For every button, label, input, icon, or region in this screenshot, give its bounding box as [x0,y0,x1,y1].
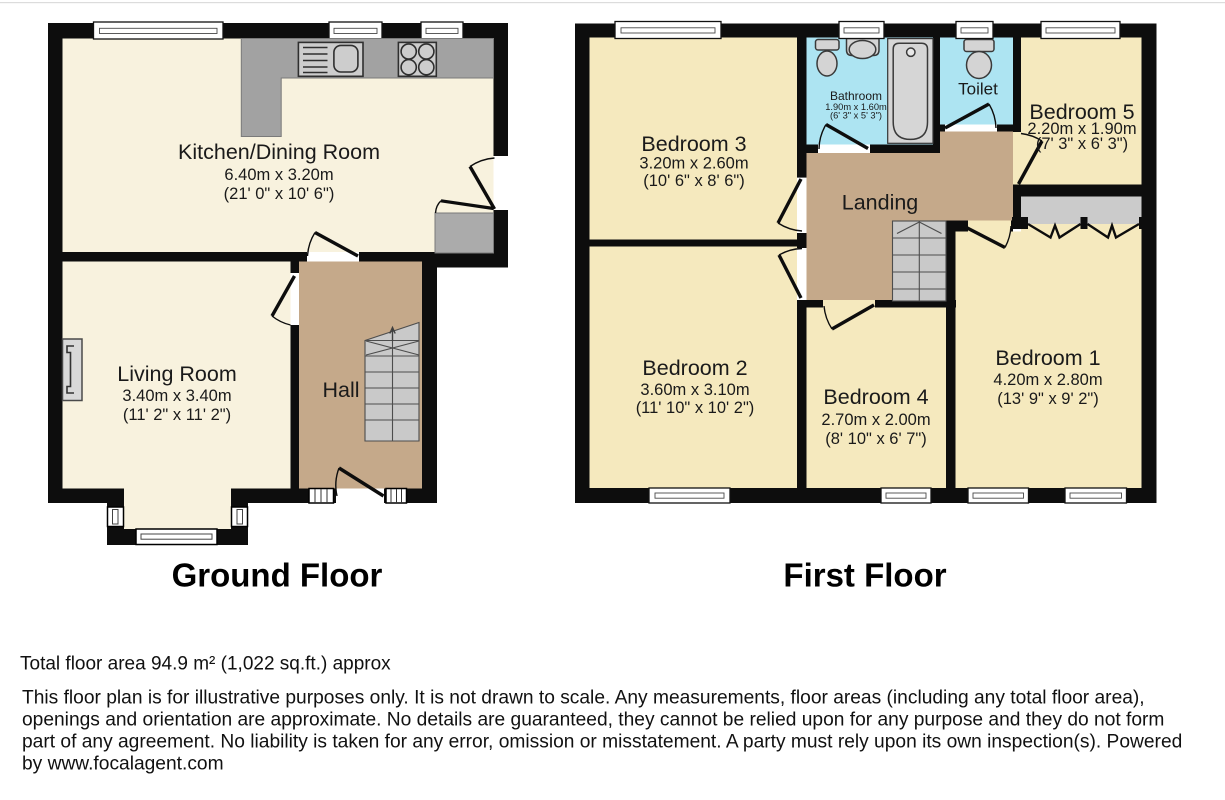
svg-text:4.20m x 2.80m: 4.20m x 2.80m [993,371,1102,389]
svg-text:2.70m x 2.00m: 2.70m x 2.00m [821,411,930,429]
svg-text:(13' 9" x 9' 2"): (13' 9" x 9' 2") [997,390,1098,408]
svg-text:Bedroom 1: Bedroom 1 [995,346,1100,370]
svg-text:(11' 2" x 11' 2"): (11' 2" x 11' 2") [123,406,231,424]
svg-text:3.60m x 3.10m: 3.60m x 3.10m [640,381,749,399]
svg-text:by www.focalagent.com: by www.focalagent.com [22,754,224,775]
svg-text:Toilet: Toilet [958,80,998,99]
svg-text:Bedroom 4: Bedroom 4 [823,385,928,409]
svg-text:(11' 10" x 10' 2"): (11' 10" x 10' 2") [636,399,755,417]
svg-text:3.20m x 2.60m: 3.20m x 2.60m [639,155,748,173]
svg-text:Bedroom 2: Bedroom 2 [642,356,747,380]
svg-text:(10' 6" x 8' 6"): (10' 6" x 8' 6") [643,172,744,190]
svg-text:6.40m x 3.20m: 6.40m x 3.20m [224,166,333,184]
svg-text:Bathroom: Bathroom [830,89,882,103]
svg-text:(8' 10" x 6' 7"): (8' 10" x 6' 7") [825,430,926,448]
svg-text:This floor plan is for illustr: This floor plan is for illustrative purp… [22,688,1145,709]
svg-text:openings and orientation are a: openings and orientation are approximate… [22,710,1164,731]
svg-text:(7' 3" x 6' 3"): (7' 3" x 6' 3") [1036,135,1128,153]
svg-text:Living Room: Living Room [117,362,237,386]
svg-text:part of any agreement. No liab: part of any agreement. No liability is t… [22,732,1182,753]
svg-text:Ground Floor: Ground Floor [172,557,383,594]
svg-text:3.40m x 3.40m: 3.40m x 3.40m [122,387,231,405]
svg-text:Landing: Landing [842,191,919,215]
svg-text:Hall: Hall [322,378,359,402]
svg-text:Bedroom 3: Bedroom 3 [641,132,746,156]
svg-text:Total floor area 94.9 m² (1,02: Total floor area 94.9 m² (1,022 sq.ft.) … [20,654,391,675]
svg-text:(21' 0" x 10' 6"): (21' 0" x 10' 6") [224,185,335,203]
svg-text:(6' 3" x 5' 3"): (6' 3" x 5' 3") [830,111,882,121]
svg-text:Kitchen/Dining Room: Kitchen/Dining Room [178,140,380,164]
svg-text:First Floor: First Floor [783,557,946,594]
